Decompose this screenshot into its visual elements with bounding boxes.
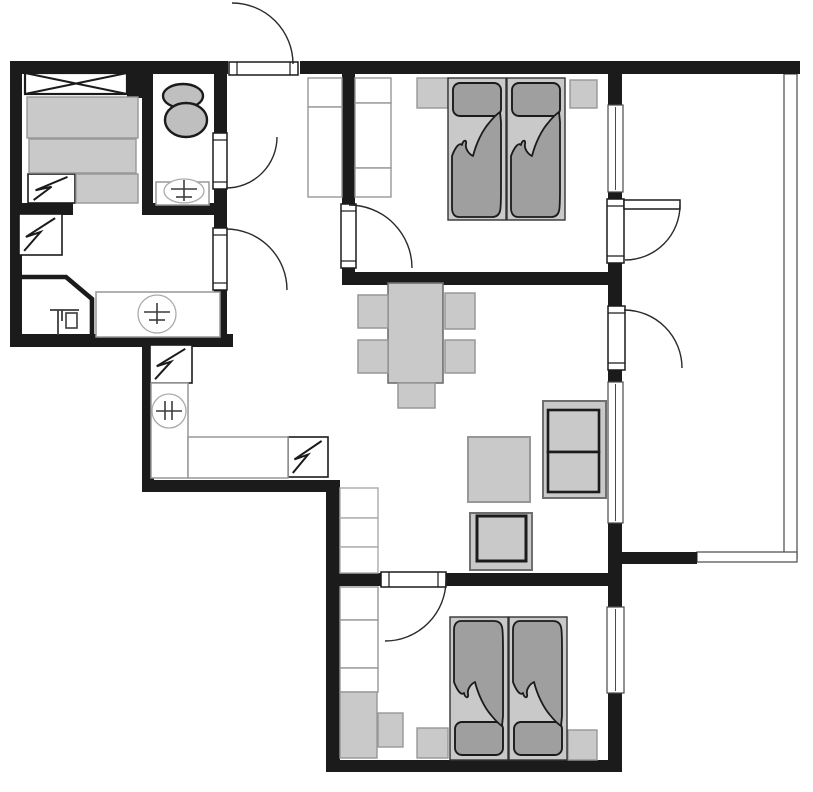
wall-bedroom1-bottom: [342, 272, 620, 285]
wall-bathroom-left: [142, 70, 153, 215]
dining-chair-left-top: [358, 295, 388, 328]
wall-kitchen-bottom: [142, 480, 338, 492]
dining-table: [388, 283, 443, 383]
storage-bed-part-3: [76, 174, 138, 203]
living-shelf-3: [340, 547, 378, 573]
floor-plan: [0, 0, 813, 792]
wall-right-living-lower: [608, 523, 622, 607]
bedroom2-nightstand-right: [568, 730, 597, 760]
balcony-door2-opening: [608, 306, 625, 370]
balcony-door1-opening-panel: [607, 199, 624, 263]
bedroom1-bed-right: [507, 78, 565, 220]
storage-appliance-1: [28, 174, 75, 203]
wall-closet-post: [127, 70, 142, 98]
kitchen-appliance-1: [150, 345, 192, 383]
wall-right-mid-junction: [608, 259, 622, 308]
balcony-door2-opening-panel: [608, 306, 625, 370]
storage-door-leaf: [213, 228, 227, 290]
bedroom1-nightstand-left: [417, 78, 448, 108]
storage-bed-part-2: [29, 139, 136, 173]
bedroom1-bed-left: [448, 78, 506, 220]
bathroom-door-leaf-panel: [213, 133, 227, 189]
toilet-bowl: [165, 103, 207, 137]
entry-door-leaf-panel: [229, 62, 298, 75]
bedroom2-wardrobe-3: [340, 668, 378, 692]
window-living: [608, 382, 623, 523]
bedroom2-door-leaf: [381, 572, 446, 587]
bedroom2-wardrobe-2: [340, 620, 378, 668]
bedroom1-bed-right-pillow: [512, 83, 560, 116]
floor-plan-svg: [0, 0, 813, 792]
bedroom2-dresser: [340, 692, 377, 758]
storage-bed-part-1: [27, 97, 138, 138]
hall-wardrobe-right-3: [355, 168, 391, 197]
sofa-cushion-bottom: [548, 452, 599, 492]
hall-wardrobe-right-2: [355, 103, 391, 168]
storage-door-leaf-panel: [213, 228, 227, 290]
dining-chair-right-top: [445, 293, 475, 329]
bedroom2-nightstand-left: [417, 728, 448, 758]
bedroom1-door-leaf: [341, 204, 356, 268]
shower-tap-icon: [66, 313, 77, 328]
bedroom1-bed-left-pillow: [453, 83, 501, 116]
dining-chair-bottom: [398, 383, 435, 408]
bedroom2-bed-left-pillow: [455, 722, 503, 755]
wall-balcony-stub: [620, 552, 697, 564]
window-bedroom2: [607, 607, 624, 693]
wall-storage-stub: [10, 203, 73, 215]
bedroom2-wardrobe-1: [340, 587, 378, 620]
window-bedroom1: [608, 105, 623, 192]
balcony-railing-right: [784, 74, 797, 558]
bedroom1-nightstand-right: [570, 80, 597, 108]
bedroom1-door-leaf-panel: [341, 204, 356, 268]
storage-appliance-2: [19, 214, 62, 255]
living-rug: [468, 437, 530, 502]
wall-bedroom2-top-a: [326, 573, 382, 586]
balcony-door1-opening: [607, 199, 624, 263]
storage-closet: [25, 73, 127, 94]
wall-bedroom2-left: [326, 480, 340, 772]
wall-bedroom1-left: [342, 61, 355, 205]
hall-wardrobe-left-2: [308, 107, 342, 197]
bedroom2-bed-left: [450, 617, 508, 760]
wall-right-below-door2: [608, 370, 622, 382]
wall-right-upper: [608, 74, 622, 105]
balcony-door1-leaf: [624, 200, 680, 209]
armchair-cushion: [477, 516, 526, 561]
living-shelf-1: [340, 488, 378, 518]
wall-bedroom2-top-b: [445, 573, 620, 586]
wall-bottom-outer: [326, 760, 622, 772]
bathroom-door-leaf: [213, 133, 227, 189]
balcony-door1-leaf-panel: [624, 200, 680, 209]
living-shelf-2: [340, 518, 378, 547]
bedroom2-bed-right-pillow: [514, 722, 562, 755]
wall-top-main: [300, 61, 800, 74]
entry-door-leaf: [229, 62, 298, 75]
storage-sink-basin: [138, 295, 176, 333]
bedroom2-bed-right: [509, 617, 567, 760]
kitchen-counter-horizontal: [188, 437, 288, 478]
balcony-railing-bottom: [697, 552, 797, 562]
kitchen-hob: [152, 394, 186, 428]
bedroom2-side-table: [378, 713, 403, 747]
bedroom2-door-leaf-panel: [381, 572, 446, 587]
dining-chair-right-bottom: [445, 340, 475, 373]
dining-chair-left-bottom: [358, 340, 388, 373]
bathroom-sink-basin: [164, 179, 204, 203]
hall-wardrobe-right-1: [355, 78, 391, 103]
kitchen-appliance-2: [288, 437, 328, 477]
sofa-cushion-top: [548, 410, 599, 452]
wall-left-block-right-upper: [214, 61, 227, 135]
hall-wardrobe-left-1: [308, 78, 342, 107]
